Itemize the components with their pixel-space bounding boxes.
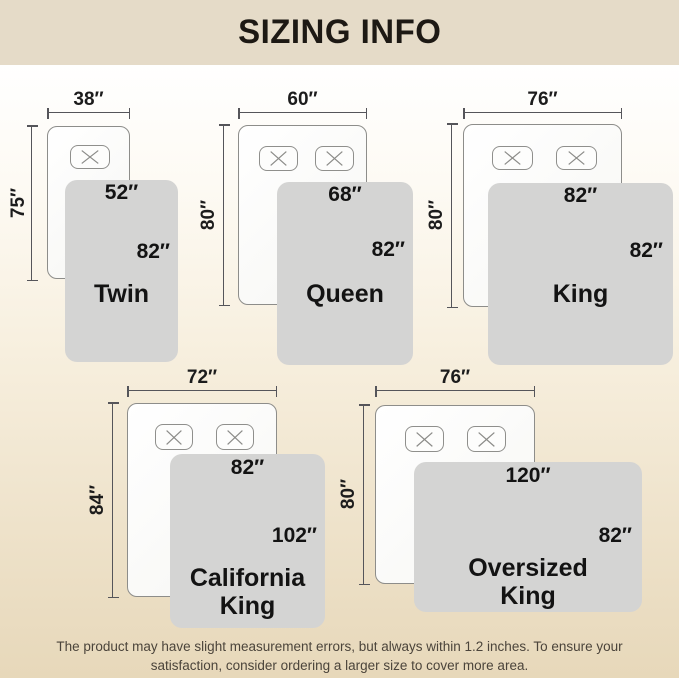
width-dimension-line [464, 112, 621, 113]
blanket-oversized-king: 120″ 82″ Oversized King [414, 462, 642, 612]
bed-height-label: 80″ [198, 200, 220, 230]
disclaimer-line-1: The product may have slight measurement … [0, 637, 679, 656]
height-dimension-line [223, 125, 224, 305]
bed-height-label: 84″ [87, 485, 109, 515]
size-name-label: Twin [65, 280, 178, 308]
blanket-width-label: 68″ [277, 182, 413, 208]
blanket-king: 82″ 82″ King [488, 183, 673, 365]
blanket-width-label: 82″ [170, 455, 325, 481]
width-dimension-line [128, 390, 276, 391]
size-name-label: California King [178, 564, 318, 620]
pillow-x-icon [315, 146, 354, 171]
bed-width-label: 72″ [127, 367, 277, 389]
bed-height-label: 80″ [338, 479, 360, 509]
disclaimer-text: The product may have slight measurement … [0, 637, 679, 675]
pillow-x-icon [155, 424, 193, 450]
size-name-label: King [488, 280, 673, 308]
blanket-height-label: 82″ [137, 239, 170, 265]
pillow-x-icon [70, 145, 110, 169]
blanket-height-label: 102″ [272, 523, 317, 549]
width-dimension-line [239, 112, 366, 113]
blanket-width-label: 82″ [488, 183, 673, 209]
size-name-label: Oversized King [443, 554, 613, 610]
title-banner: SIZING INFO [0, 0, 679, 65]
bed-width-label: 38″ [47, 89, 130, 111]
pillow-x-icon [492, 146, 533, 170]
height-dimension-line [451, 124, 452, 307]
blanket-height-label: 82″ [630, 238, 663, 264]
width-dimension-line [48, 112, 129, 113]
blanket-queen: 68″ 82″ Queen [277, 182, 413, 365]
blanket-california-king: 82″ 102″ California King [170, 454, 325, 628]
page-title: SIZING INFO [238, 13, 441, 52]
disclaimer-line-2: satisfaction, consider ordering a larger… [0, 656, 679, 675]
bed-width-label: 60″ [238, 89, 367, 111]
height-dimension-line [363, 405, 364, 584]
bed-height-label: 80″ [426, 200, 448, 230]
pillow-x-icon [556, 146, 597, 170]
width-dimension-line [376, 390, 534, 391]
pillow-x-icon [467, 426, 506, 452]
height-dimension-line [112, 403, 113, 597]
blanket-width-label: 52″ [65, 180, 178, 206]
bed-width-label: 76″ [463, 89, 622, 111]
blanket-height-label: 82″ [599, 523, 632, 549]
blanket-width-label: 120″ [414, 463, 642, 489]
pillow-x-icon [405, 426, 444, 452]
bed-height-label: 75″ [8, 188, 30, 218]
blanket-twin: 52″ 82″ Twin [65, 180, 178, 362]
pillow-x-icon [259, 146, 298, 171]
height-dimension-line [31, 126, 32, 280]
size-name-label: Queen [277, 280, 413, 308]
pillow-x-icon [216, 424, 254, 450]
blanket-height-label: 82″ [372, 237, 405, 263]
bed-width-label: 76″ [375, 367, 535, 389]
